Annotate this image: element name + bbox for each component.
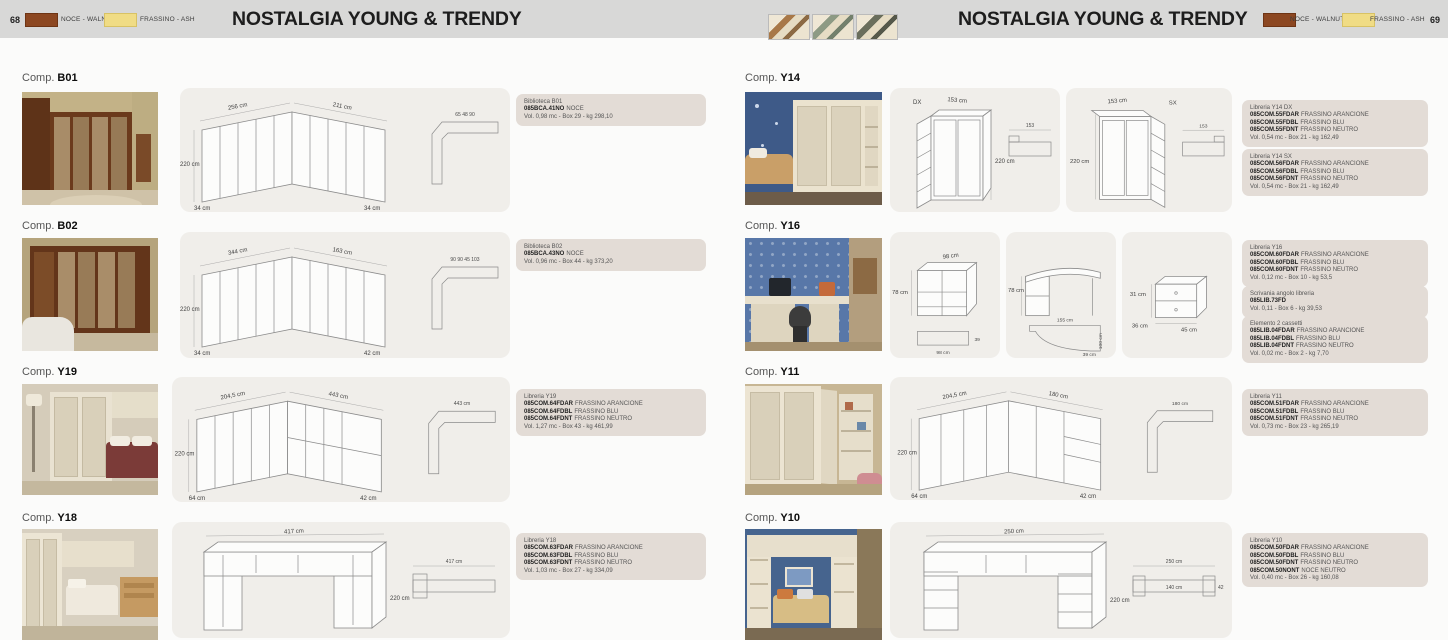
product-code-line: 085COM.50FDNTFRASSINO NEUTRO	[1250, 560, 1420, 567]
product-code-line: 085COM.51FDNTFRASSINO NEUTRO	[1250, 416, 1420, 423]
photo-comp-b02	[22, 238, 158, 351]
dim-b01-depth-right: 34 cm	[364, 206, 380, 212]
dim-y14dx-side: DX	[913, 100, 921, 106]
product-volume: Vol. 0,54 mc - Box 21 - kg 162,49	[1250, 135, 1420, 142]
product-code-line: 085COM.56FDARFRASSINO ARANCIONE	[1250, 161, 1420, 168]
page-title-left: NOSTALGIA YOUNG & TRENDY	[232, 8, 492, 31]
dim-y19-depth-right: 42 cm	[360, 496, 376, 502]
dim-y19-height: 220 cm	[175, 452, 195, 458]
comp-label-b01: Comp.B01	[22, 72, 78, 84]
dim-y10-height: 220 cm	[1110, 598, 1130, 604]
dim-b01-plan: 65 48 90	[455, 112, 475, 118]
photo-comp-y16	[745, 238, 882, 351]
dim-y10-plan-depth: 42	[1218, 585, 1224, 591]
comp-label-b02: Comp.B02	[22, 220, 78, 232]
product-code-line: 085LIB.73FD	[1250, 298, 1420, 305]
dim-y14sx-plan: 153	[1199, 123, 1207, 129]
drawing-comp-y14-sx: 153 cm SX 220 cm 153	[1066, 88, 1232, 212]
dim-y16c-depth: 36 cm	[1132, 323, 1148, 329]
dim-b02-plan: 90 90 45 103	[450, 257, 479, 263]
product-name: Biblioteca B01	[524, 99, 698, 106]
product-name: Elemento 2 cassetti	[1250, 321, 1420, 328]
infobox-b02: Biblioteca B02 085BCA.43NONOCE Vol. 0,96…	[516, 239, 706, 271]
dim-b01-depth-left: 34 cm	[194, 206, 210, 212]
product-name: Libreria Y14 DX	[1250, 105, 1420, 112]
product-name: Libreria Y10	[1250, 538, 1420, 545]
dim-y11-depth-right: 42 cm	[1080, 494, 1096, 500]
product-code-line: 085COM.51FDARFRASSINO ARANCIONE	[1250, 401, 1420, 408]
page-number-right: 69	[1430, 15, 1440, 25]
comp-label-y16: Comp.Y16	[745, 220, 800, 232]
infobox-y19: Libreria Y19 085COM.64FDARFRASSINO ARANC…	[516, 389, 706, 436]
product-volume: Vol. 0,73 mc - Box 23 - kg 265,19	[1250, 424, 1420, 431]
product-code-line: 085COM.51FDBLFRASSINO BLU	[1250, 409, 1420, 416]
infobox-y10: Libreria Y10 085COM.50FDARFRASSINO ARANC…	[1242, 533, 1428, 587]
comp-label-y10: Comp.Y10	[745, 512, 800, 524]
dim-y19-depth-left: 64 cm	[189, 496, 205, 502]
photo-comp-y14	[745, 92, 882, 205]
drawing-y16-drawers: 31 cm 36 cm 45 cm	[1122, 232, 1232, 358]
product-name: Biblioteca B02	[524, 244, 698, 251]
dim-y14sx-side: SX	[1169, 101, 1177, 107]
frame-corner-thumbnail-2	[812, 14, 854, 40]
infobox-y18: Libreria Y18 085COM.63FDARFRASSINO ARANC…	[516, 533, 706, 580]
dim-y11-plan: 180 cm	[1172, 401, 1188, 407]
product-volume: Vol. 0,11 - Box 6 - kg 39,53	[1250, 306, 1420, 313]
frame-corner-thumbnail-1	[768, 14, 810, 40]
infobox-y14-dx: Libreria Y14 DX 085COM.55FDARFRASSINO AR…	[1242, 100, 1428, 147]
product-volume: Vol. 1,27 mc - Box 43 - kg 461,99	[524, 424, 698, 431]
dim-y14dx-plan: 153	[1026, 123, 1035, 129]
dim-y11-width-left: 204,5 cm	[942, 391, 967, 402]
drawing-comp-y14-dx: DX 153 cm 220 cm 153	[890, 88, 1060, 212]
product-name: Libreria Y14 SX	[1250, 154, 1420, 161]
product-code-line: 085LIB.04FDARFRASSINO ARANCIONE	[1250, 328, 1420, 335]
product-code-line: 085COM.60FDBLFRASSINO BLU	[1250, 260, 1420, 267]
dim-b01-width-left: 256 cm	[228, 102, 248, 112]
drawing-comp-y11: 204,5 cm 180 cm 220 cm 64 cm 42 cm 180 c…	[890, 377, 1232, 500]
infobox-y16-libreria: Libreria Y16 085COM.60FDARFRASSINO ARANC…	[1242, 240, 1428, 287]
drawing-y16-bookcase: 98 cm 78 cm 39 98 cm	[890, 232, 1000, 358]
dim-y19-plan: 443 cm	[454, 401, 471, 407]
infobox-y16-scrivania: Scrivania angolo libreria 085LIB.73FD Vo…	[1242, 286, 1428, 318]
drawing-y16-desk: 78 cm 155 cm 100 cm 39 cm	[1006, 232, 1116, 358]
product-name: Libreria Y16	[1250, 245, 1420, 252]
comp-label-y14: Comp.Y14	[745, 72, 800, 84]
product-code-line: 085COM.64FDNTFRASSINO NEUTRO	[524, 416, 698, 423]
product-volume: Vol. 0,02 mc - Box 2 - kg 7,70	[1250, 351, 1420, 358]
product-code-line: 085BCA.43NONOCE	[524, 251, 698, 258]
ash-swatch-label: FRASSINO - ASH	[140, 16, 195, 23]
photo-comp-y10	[745, 529, 882, 640]
dim-y11-width-right: 180 cm	[1048, 391, 1068, 401]
drawing-comp-y10: 250 cm 220 cm 250 cm 140 cm 42	[890, 522, 1232, 638]
dim-y10-plan: 250 cm	[1166, 559, 1182, 565]
dim-y10-width: 250 cm	[1004, 528, 1024, 535]
dim-y14sx-height: 220 cm	[1070, 159, 1089, 165]
product-volume: Vol. 0,54 mc - Box 21 - kg 162,49	[1250, 184, 1420, 191]
photo-comp-y11	[745, 384, 882, 495]
infobox-y14-sx: Libreria Y14 SX 085COM.56FDARFRASSINO AR…	[1242, 149, 1428, 196]
dim-b01-height: 220 cm	[180, 162, 200, 168]
product-code-line: 085COM.55FDARFRASSINO ARANCIONE	[1250, 112, 1420, 119]
dim-y16a-height: 78 cm	[892, 290, 908, 296]
drawing-comp-b01: 256 cm 211 cm 220 cm 34 cm 34 cm 65 48 9…	[180, 88, 510, 212]
product-code-line: 085LIB.04FDBLFRASSINO BLU	[1250, 336, 1420, 343]
product-code-line: 085COM.56FDBLFRASSINO BLU	[1250, 169, 1420, 176]
dim-b02-depth-right: 42 cm	[364, 351, 380, 357]
dim-y16a-plan-width: 98 cm	[936, 350, 949, 356]
product-code-line: 085COM.64FDARFRASSINO ARANCIONE	[524, 401, 698, 408]
dim-y16c-height: 31 cm	[1130, 292, 1146, 298]
dim-y16a-plan-depth: 39	[974, 337, 980, 343]
dim-y16a-width: 98 cm	[942, 253, 959, 261]
product-code-line: 085COM.50NONTNOCE NEUTRO	[1250, 568, 1420, 575]
dim-y19-width-right: 443 cm	[328, 391, 349, 401]
comp-label-y11: Comp.Y11	[745, 366, 799, 378]
infobox-b01: Biblioteca B01 085BCA.41NONOCE Vol. 0,98…	[516, 94, 706, 126]
product-code-line: 085LIB.04FDNTFRASSINO NEUTRO	[1250, 343, 1420, 350]
dim-y10-plan-mid: 140 cm	[1166, 585, 1182, 591]
product-volume: Vol. 0,96 mc - Box 44 - kg 373,20	[524, 259, 698, 266]
dim-y16b-plan-radius: 39 cm	[1083, 352, 1096, 358]
product-name: Scrivania angolo libreria	[1250, 291, 1420, 298]
infobox-y11: Libreria Y11 085COM.51FDARFRASSINO ARANC…	[1242, 389, 1428, 436]
walnut-swatch	[25, 13, 58, 27]
dim-b02-width-right: 163 cm	[332, 247, 352, 257]
dim-y14dx-height: 220 cm	[995, 159, 1015, 165]
comp-label-y19: Comp.Y19	[22, 366, 77, 378]
drawing-comp-y18: 417 cm 220 cm 417 cm	[172, 522, 510, 638]
infobox-y16-cassetti: Elemento 2 cassetti 085LIB.04FDARFRASSIN…	[1242, 316, 1428, 363]
photo-comp-y18	[22, 529, 158, 640]
dim-y18-width: 417 cm	[284, 528, 304, 535]
product-code-line: 085BCA.41NONOCE	[524, 106, 698, 113]
product-code-line: 085COM.56FDNTFRASSINO NEUTRO	[1250, 176, 1420, 183]
product-code-line: 085COM.60FDNTFRASSINO NEUTRO	[1250, 267, 1420, 274]
ash-swatch-label-right: FRASSINO - ASH	[1370, 16, 1425, 23]
dim-y18-plan: 417 cm	[446, 559, 462, 565]
product-code-line: 085COM.63FDBLFRASSINO BLU	[524, 553, 698, 560]
frame-corner-thumbnail-3	[856, 14, 898, 40]
page-number-left: 68	[10, 15, 20, 25]
dim-y16b-plan-width: 155 cm	[1057, 318, 1073, 324]
dim-y16b-plan-depth: 100 cm	[1098, 333, 1104, 349]
dim-y14sx-width: 153 cm	[1107, 98, 1127, 106]
photo-comp-y19	[22, 384, 158, 495]
product-name: Libreria Y18	[524, 538, 698, 545]
product-code-line: 085COM.50FDARFRASSINO ARANCIONE	[1250, 545, 1420, 552]
dim-y16c-width: 45 cm	[1181, 327, 1197, 333]
walnut-swatch-label-right: NOCE - WALNUT	[1290, 16, 1344, 23]
dim-b01-width-right: 211 cm	[332, 102, 352, 112]
drawing-comp-y19: 204,5 cm 443 cm 220 cm 64 cm 42 cm 443 c…	[172, 377, 510, 502]
photo-comp-b01	[22, 92, 158, 205]
drawing-comp-b02: 344 cm 163 cm 220 cm 34 cm 42 cm 90 90 4…	[180, 232, 510, 358]
dim-y11-height: 220 cm	[897, 450, 917, 456]
product-volume: Vol. 0,40 mc - Box 26 - kg 160,08	[1250, 575, 1420, 582]
catalog-spread: 68 NOCE - WALNUT FRASSINO - ASH NOSTALGI…	[0, 0, 1448, 640]
product-name: Libreria Y19	[524, 394, 698, 401]
dim-y14dx-width: 153 cm	[947, 97, 967, 105]
product-code-line: 085COM.55FDNTFRASSINO NEUTRO	[1250, 127, 1420, 134]
dim-y18-height: 220 cm	[390, 596, 410, 602]
comp-label-y18: Comp.Y18	[22, 512, 77, 524]
product-volume: Vol. 0,12 mc - Box 10 - kg 53,5	[1250, 275, 1420, 282]
page-title-right: NOSTALGIA YOUNG & TRENDY	[958, 8, 1218, 31]
product-volume: Vol. 1,03 mc - Box 27 - kg 334,09	[524, 568, 698, 575]
product-code-line: 085COM.50FDBLFRASSINO BLU	[1250, 553, 1420, 560]
product-code-line: 085COM.63FDARFRASSINO ARANCIONE	[524, 545, 698, 552]
dim-b02-width-left: 344 cm	[228, 247, 248, 257]
ash-swatch	[104, 13, 137, 27]
product-code-line: 085COM.60FDARFRASSINO ARANCIONE	[1250, 252, 1420, 259]
product-volume: Vol. 0,98 mc - Box 29 - kg 298,10	[524, 114, 698, 121]
product-code-line: 085COM.63FDNTFRASSINO NEUTRO	[524, 560, 698, 567]
dim-b02-height: 220 cm	[180, 307, 200, 313]
dim-b02-depth-left: 34 cm	[194, 351, 210, 357]
product-name: Libreria Y11	[1250, 394, 1420, 401]
dim-y11-depth-left: 64 cm	[911, 494, 927, 500]
dim-y19-width-left: 204,5 cm	[220, 391, 246, 402]
product-code-line: 085COM.55FDBLFRASSINO BLU	[1250, 120, 1420, 127]
product-code-line: 085COM.64FDBLFRASSINO BLU	[524, 409, 698, 416]
